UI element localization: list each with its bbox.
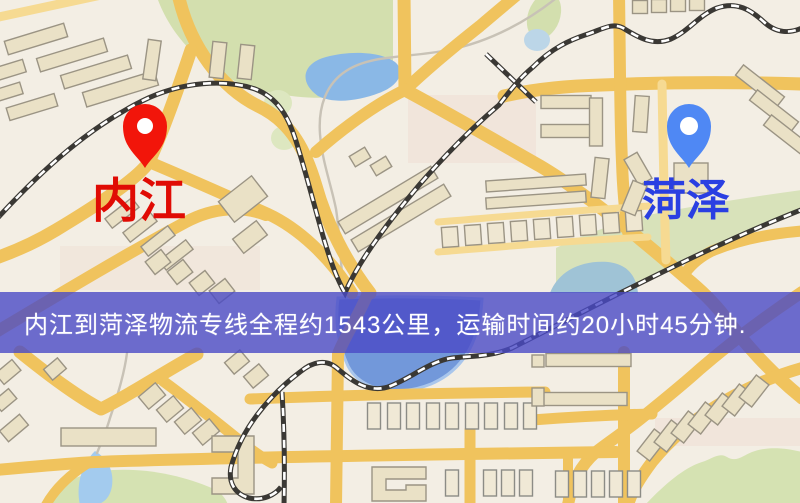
destination-city-label: 菏泽 xyxy=(642,176,730,225)
map-graphics: 内江 菏泽 xyxy=(0,0,800,503)
destination-pin-hole xyxy=(680,117,698,135)
small-pond xyxy=(524,29,550,51)
route-info-banner: 内江到菏泽物流专线全程约1543公里，运输时间约20小时45分钟. xyxy=(0,292,800,353)
origin-city-label: 内江 xyxy=(92,176,186,228)
route-info-text: 内江到菏泽物流专线全程约1543公里，运输时间约20小时45分钟. xyxy=(0,305,746,340)
origin-pin-hole xyxy=(137,118,153,134)
map-canvas[interactable]: 内江 菏泽 内江到菏泽物流专线全程约1543公里，运输时间约20小时45分钟. xyxy=(0,0,800,503)
